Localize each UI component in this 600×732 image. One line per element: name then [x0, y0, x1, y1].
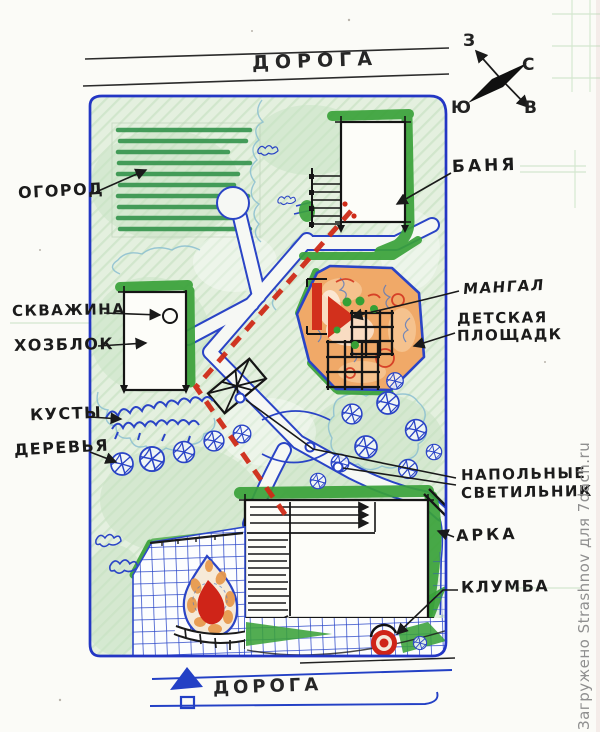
- road-top-label: ДОРОГА: [252, 48, 379, 74]
- ogorod-label: ОГОРОД: [18, 181, 105, 201]
- hozblok-building: [118, 286, 190, 394]
- svetilniki-label-line1: НАПОЛЬНЫЕ: [461, 466, 586, 483]
- arka-label: АРКА: [456, 526, 518, 544]
- detskaya-label-line1: ДЕТСКАЯ: [457, 310, 548, 327]
- hozblok-label: ХОЗБЛОК: [14, 336, 114, 354]
- mangal-label: МАНГАЛ: [462, 278, 545, 297]
- watermark-text: Загружено Strashnov для 7dach.ru: [575, 442, 593, 730]
- compass-east-label: В: [524, 98, 537, 118]
- scanned-garden-plan: ДОРОГА З С Ю В ОГОРОД БАНЯ СКВАЖИНА ХОЗБ…: [0, 0, 600, 732]
- banya-label: БАНЯ: [452, 157, 518, 176]
- kusty-label: КУСТЫ: [30, 405, 103, 424]
- detskaya-label-line2: ПЛОЩАДК: [457, 327, 563, 344]
- svetilniki-label-line2: СВЕТИЛЬНИК: [461, 484, 593, 501]
- compass-south-label: Ю: [451, 98, 471, 118]
- skvazhina-label: СКВАЖИНА: [12, 302, 126, 319]
- skvazhina-well-symbol: [163, 309, 177, 323]
- bench-symbol: [312, 283, 322, 330]
- site-plan-drawing: [0, 0, 600, 732]
- compass-north-label: С: [522, 55, 534, 75]
- road-bottom-label: ДОРОГА: [213, 674, 323, 699]
- klumba-label: КЛУМБА: [461, 578, 549, 596]
- house-building: [239, 494, 434, 624]
- compass-west-label: З: [463, 31, 475, 51]
